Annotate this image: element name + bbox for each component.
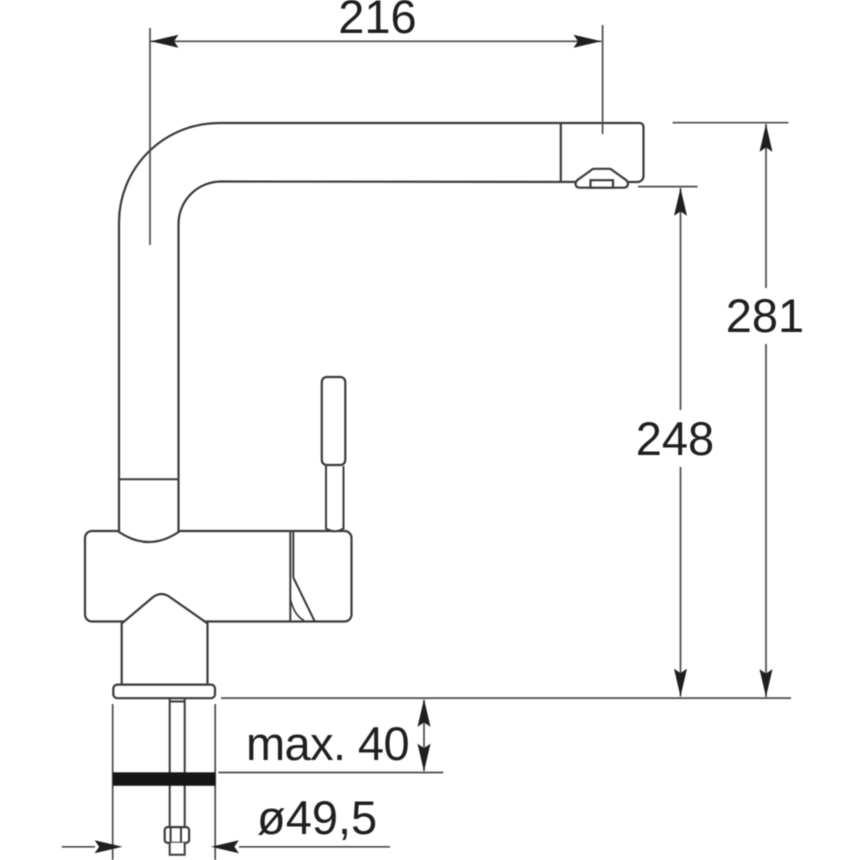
svg-text:max. 40: max. 40	[246, 717, 409, 770]
svg-text:ø49,5: ø49,5	[257, 791, 377, 844]
svg-text:216: 216	[338, 0, 416, 43]
svg-text:248: 248	[636, 412, 714, 465]
svg-text:281: 281	[726, 289, 804, 342]
